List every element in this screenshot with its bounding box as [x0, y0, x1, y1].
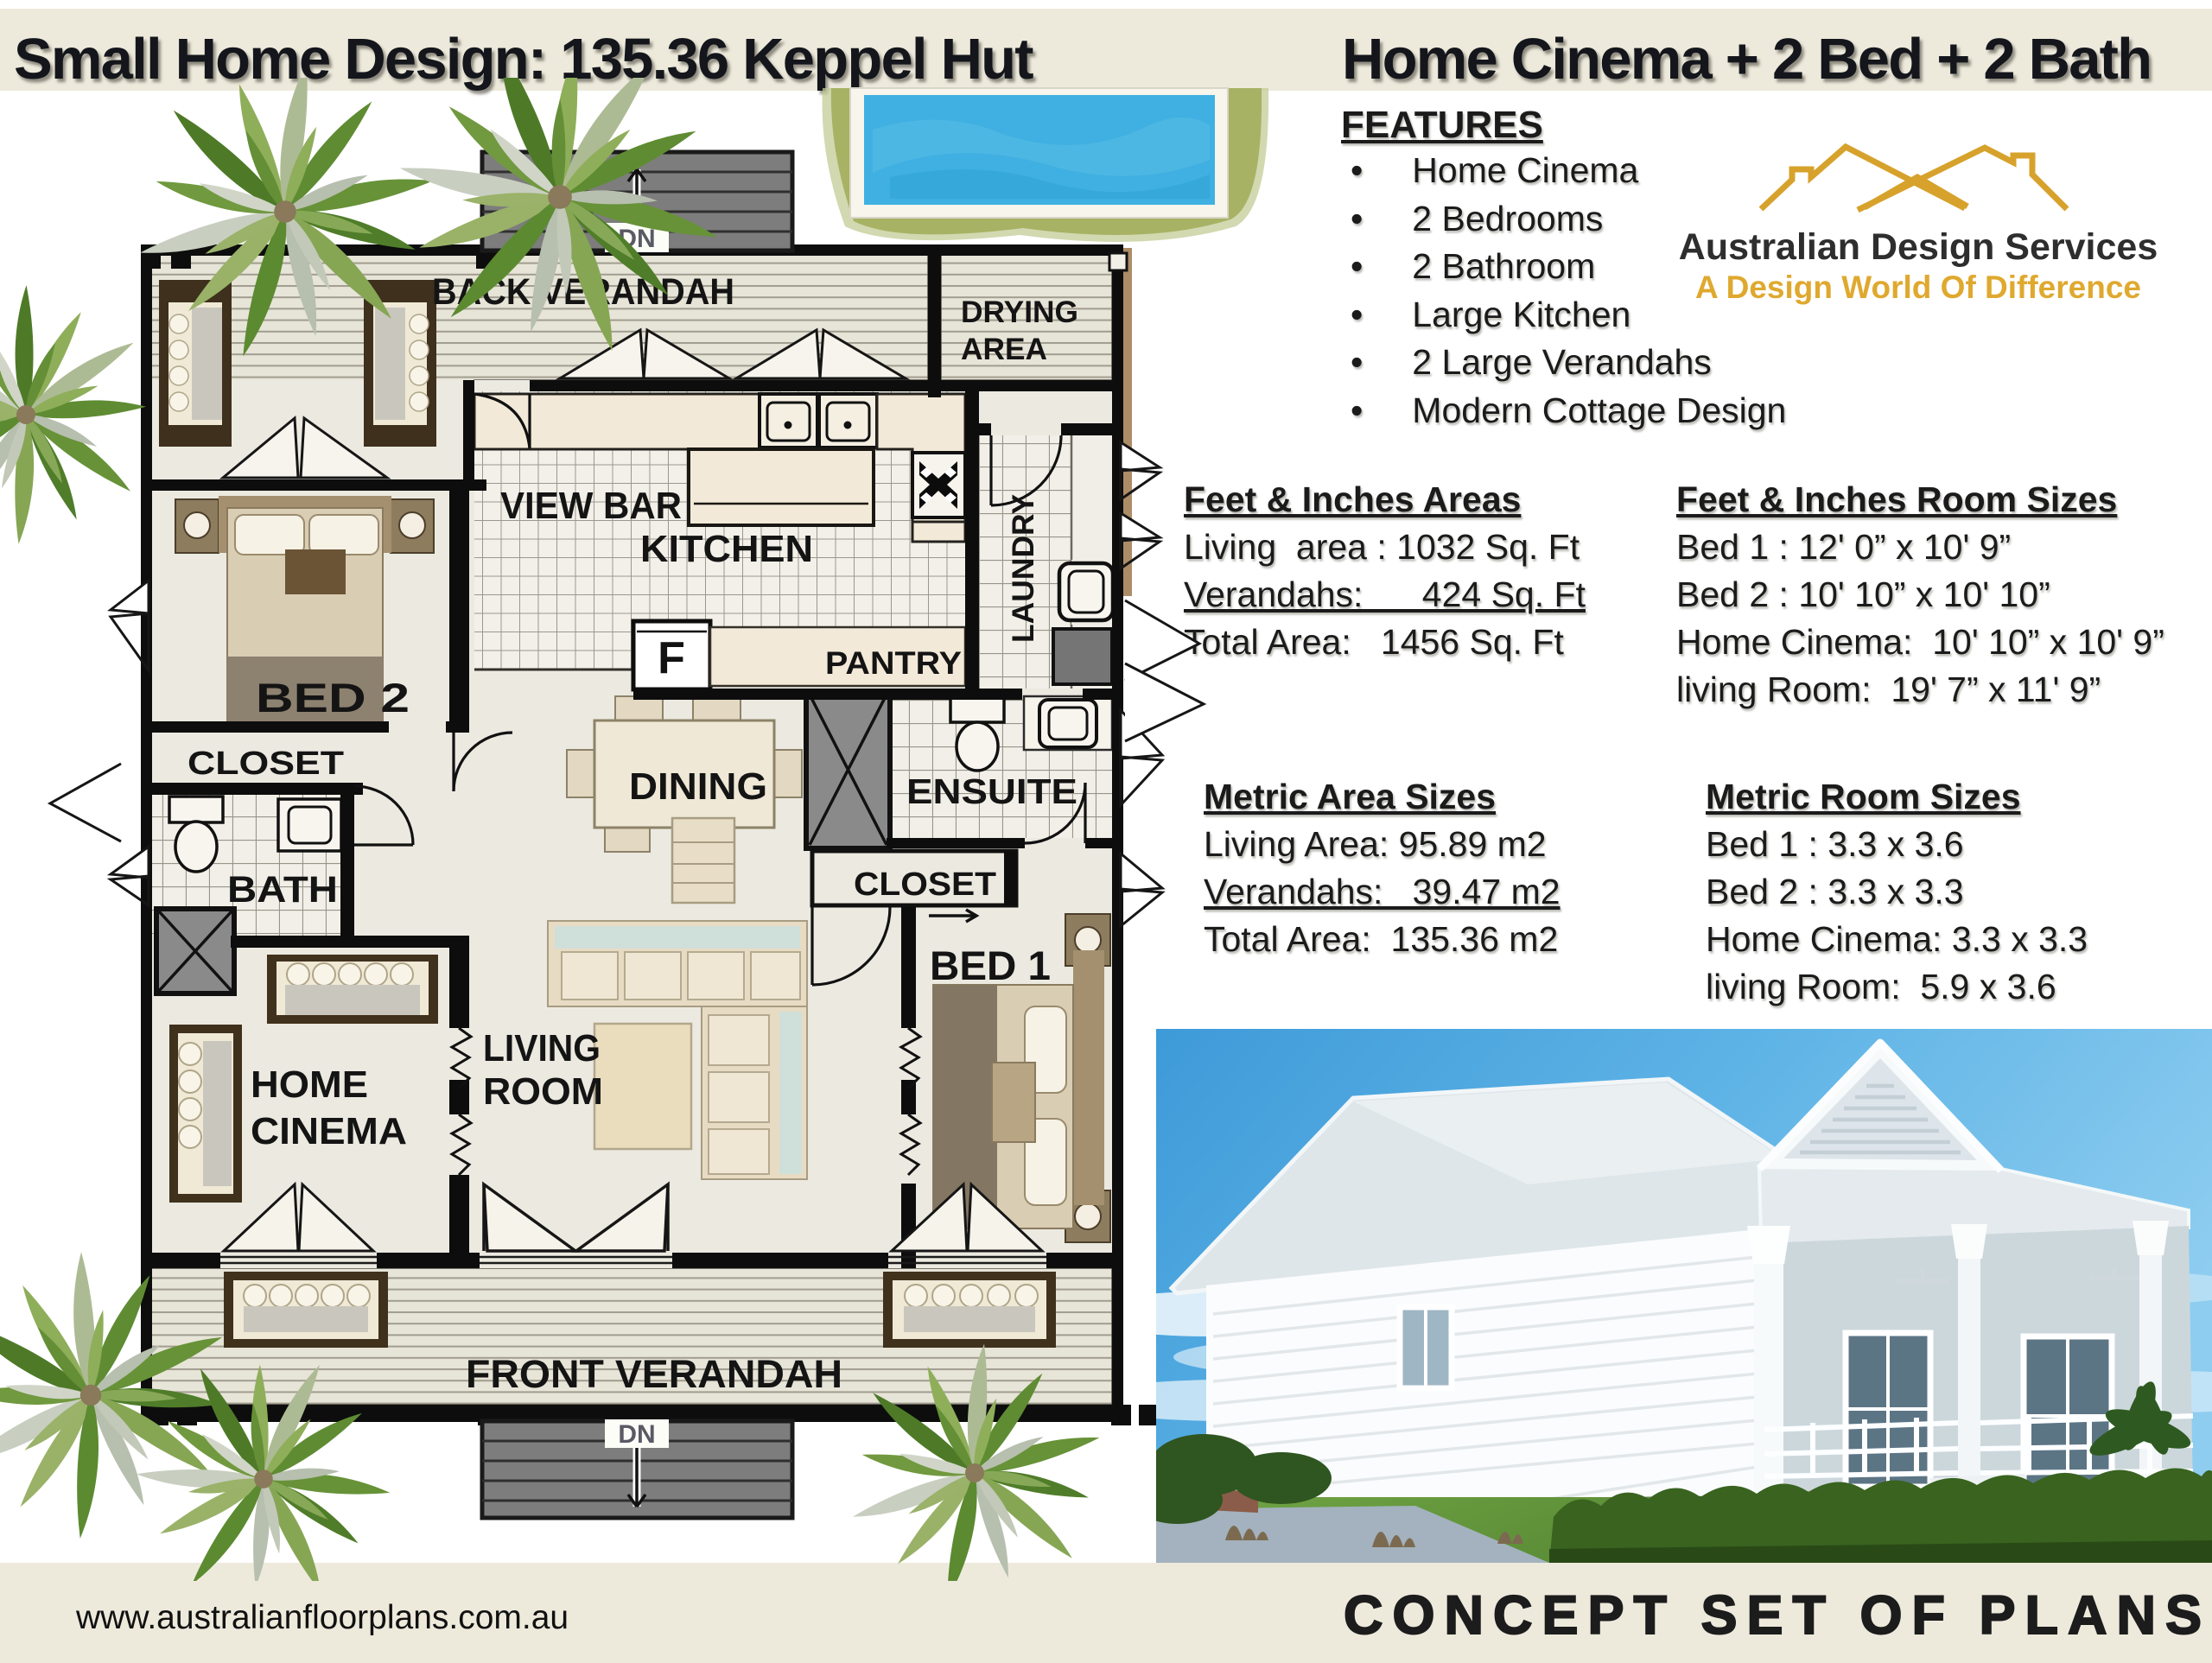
svg-text:HOME: HOME: [251, 1063, 368, 1106]
svg-text:FRONT VERANDAH: FRONT VERANDAH: [466, 1352, 842, 1396]
svg-text:CINEMA: CINEMA: [251, 1110, 407, 1152]
svg-text:F: F: [658, 633, 685, 683]
svg-text:DRYING: DRYING: [961, 295, 1078, 329]
svg-text:VIEW BAR: VIEW BAR: [500, 485, 682, 527]
svg-text:KITCHEN: KITCHEN: [640, 528, 813, 570]
svg-text:ROOM: ROOM: [483, 1070, 603, 1113]
svg-text:PANTRY: PANTRY: [825, 645, 962, 681]
svg-text:CLOSET: CLOSET: [854, 866, 996, 903]
svg-text:LAUNDRY: LAUNDRY: [1007, 494, 1040, 643]
svg-text:LIVING: LIVING: [483, 1027, 601, 1070]
svg-text:AREA: AREA: [961, 333, 1047, 366]
svg-text:DINING: DINING: [629, 765, 767, 808]
svg-text:ENSUITE: ENSUITE: [906, 771, 1077, 811]
svg-text:BATH: BATH: [227, 869, 338, 911]
svg-text:CLOSET: CLOSET: [188, 746, 344, 782]
svg-text:BED 1: BED 1: [930, 943, 1051, 988]
svg-text:DN: DN: [618, 1420, 655, 1449]
svg-text:BED 2: BED 2: [256, 675, 410, 720]
